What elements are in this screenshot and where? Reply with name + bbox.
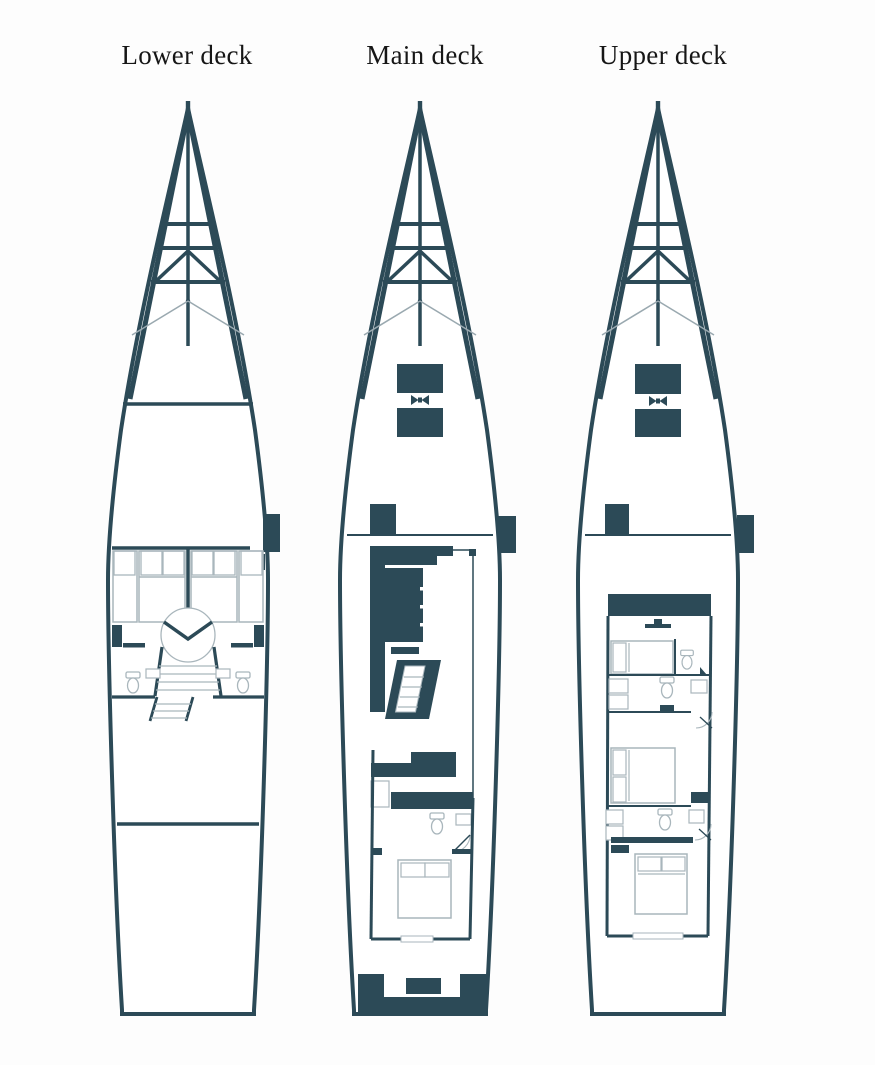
upper-deck-label: Upper deck [568, 40, 758, 71]
wall-segment [123, 643, 145, 648]
main-deck-plan [325, 98, 520, 1023]
pillow [613, 777, 626, 802]
toilet-icon [658, 809, 672, 830]
pillow [613, 643, 626, 672]
pillow [425, 863, 449, 877]
deck-hatch [635, 409, 681, 437]
cabinet [606, 810, 623, 824]
cabinet [609, 695, 628, 709]
wall-segment [660, 705, 674, 712]
owner-bed [398, 860, 451, 918]
wheelhouse-console [608, 594, 711, 616]
sink-icon [216, 669, 230, 678]
toilet-icon [430, 813, 444, 834]
wall-segment [452, 849, 473, 854]
toilet-icon [681, 650, 694, 669]
side-boarding-platform [737, 515, 754, 553]
staircase-landing [161, 608, 215, 662]
toilet-icon [126, 672, 140, 693]
door-jamb-left [112, 625, 122, 647]
main-deck-label: Main deck [330, 40, 520, 71]
sink-icon [146, 669, 160, 678]
cabinet [609, 679, 628, 693]
sink-icon [689, 810, 704, 823]
pillow [613, 750, 626, 775]
side-boarding-platform [498, 516, 516, 553]
deck-hatch [397, 408, 443, 437]
cabin-door-sill [401, 936, 433, 942]
deck-hatch [397, 364, 443, 393]
lower-deck-plan [93, 98, 288, 1023]
door-jamb-right [254, 625, 264, 647]
wall-segment [611, 837, 693, 843]
wall-segment [691, 792, 710, 803]
wall-segment [231, 643, 253, 648]
deck-hatch [635, 364, 681, 394]
yacht-deck-plans: Lower deck Main deck Upper deck [0, 0, 875, 1065]
pillow [662, 857, 685, 871]
upper-deck-plan [563, 98, 758, 1023]
pillow [638, 857, 661, 871]
aft-guest-bed [635, 854, 687, 914]
toilet-icon [660, 677, 674, 698]
cockpit-table [406, 978, 441, 994]
lower-deck-label: Lower deck [92, 40, 282, 71]
sink-icon [456, 814, 471, 825]
wall-segment [611, 845, 629, 853]
sink-icon [691, 680, 707, 693]
toilet-icon [236, 672, 250, 693]
cabin-door-sill [633, 933, 683, 939]
helm-seat [654, 619, 662, 624]
helm-seat [645, 624, 671, 628]
deck-box-left [370, 504, 396, 535]
pillow [401, 863, 425, 877]
deck-box-left [605, 504, 629, 534]
